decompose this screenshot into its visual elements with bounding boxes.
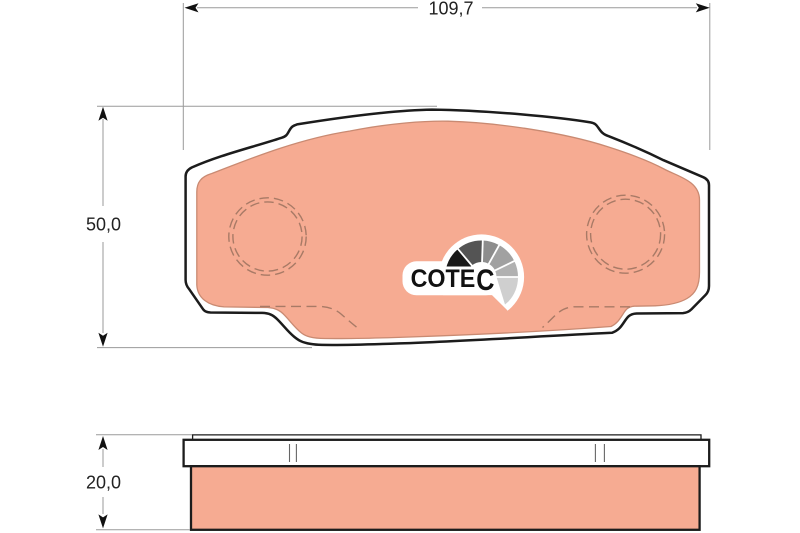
svg-text:COTE: COTE	[411, 265, 476, 293]
svg-text:50,0: 50,0	[86, 214, 121, 234]
svg-text:20,0: 20,0	[86, 472, 121, 492]
svg-text:109,7: 109,7	[428, 0, 473, 18]
svg-text:C: C	[476, 264, 494, 297]
